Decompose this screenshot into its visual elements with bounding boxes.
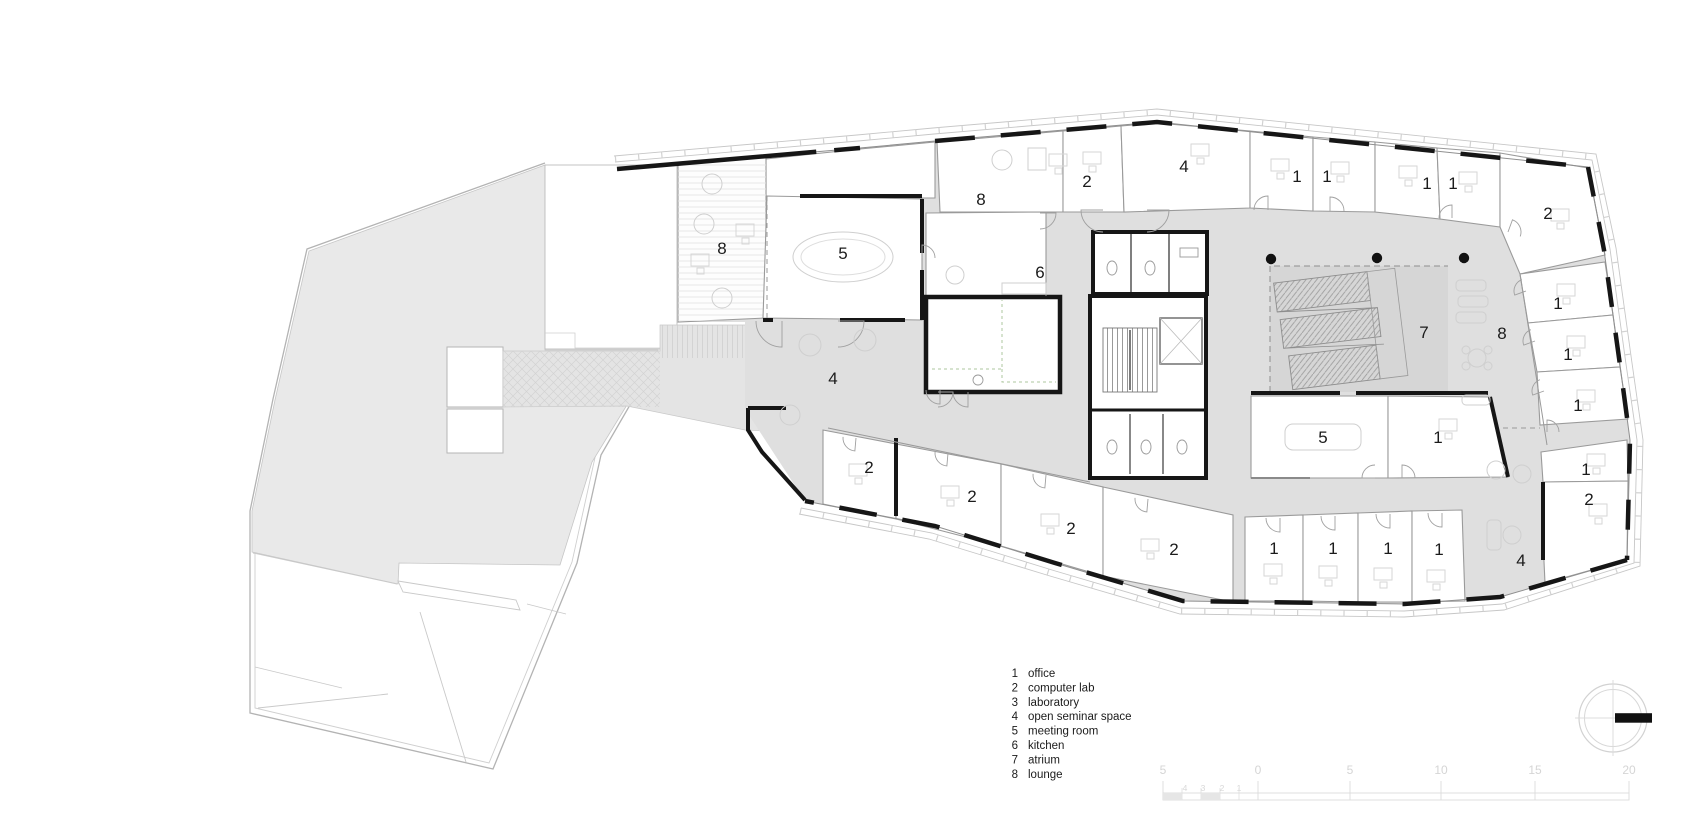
room-label-open-seminar-southeast: 4 <box>1516 551 1525 570</box>
room-label-office-e4: 1 <box>1581 460 1590 479</box>
scale-label: 20 <box>1622 763 1636 777</box>
room-label-open-seminar-north: 4 <box>1179 157 1188 176</box>
scale-label: 5 <box>1160 763 1167 777</box>
scale-label: 0 <box>1255 763 1262 777</box>
legend-num-7: 7 <box>1012 754 1018 766</box>
room-lounge-north <box>937 131 1063 212</box>
floor-plan-page: 858624111121781145112222211114 1office2c… <box>0 0 1700 827</box>
room-label-computer-lab-east: 2 <box>1584 490 1593 509</box>
scale-sublabel: 2 <box>1220 783 1225 793</box>
room-office-e2 <box>1528 315 1620 372</box>
floor-plan-canvas: 858624111121781145112222211114 1office2c… <box>0 0 1700 827</box>
legend-num-3: 3 <box>1012 697 1018 709</box>
roof-patch <box>545 165 677 349</box>
room-label-office-c1: 1 <box>1433 428 1442 447</box>
scale-sublabel: 3 <box>1201 783 1206 793</box>
skylight-box-upper <box>447 347 503 407</box>
room-label-lounge-west: 8 <box>717 239 726 258</box>
room-label-computer-lab-north: 2 <box>1082 172 1091 191</box>
room-label-open-seminar-west: 4 <box>828 369 837 388</box>
room-office-s1 <box>1245 515 1303 601</box>
room-label-meeting-room-northwest: 5 <box>838 244 847 263</box>
column-dot <box>1459 253 1469 263</box>
room-label-office-e3: 1 <box>1573 396 1582 415</box>
legend-label-4: open seminar space <box>1028 711 1132 723</box>
legend-num-1: 1 <box>1012 668 1018 680</box>
legend-num-8: 8 <box>1012 769 1018 781</box>
scale-sublabel: 1 <box>1237 783 1242 793</box>
room-label-office-n4: 1 <box>1448 174 1457 193</box>
room-label-meeting-room-south: 5 <box>1318 428 1327 447</box>
room-label-kitchen: 6 <box>1035 263 1044 282</box>
legend-label-7: atrium <box>1028 754 1060 766</box>
room-label-lounge-north: 8 <box>976 190 985 209</box>
scale-subbox <box>1201 793 1220 800</box>
lower-roof <box>253 553 566 762</box>
room-label-computer-lab-s2: 2 <box>967 487 976 506</box>
legend-label-2: computer lab <box>1028 682 1094 694</box>
room-label-office-n1: 1 <box>1292 167 1301 186</box>
room-label-office-e2: 1 <box>1563 345 1572 364</box>
legend-label-1: office <box>1028 668 1055 680</box>
skylight-box-lower <box>447 409 503 453</box>
column-dot <box>1372 253 1382 263</box>
room-label-office-s2: 1 <box>1328 539 1337 558</box>
room-label-office-s4: 1 <box>1434 540 1443 559</box>
room-label-office-s3: 1 <box>1383 539 1392 558</box>
room-label-lounge-east: 8 <box>1497 324 1506 343</box>
north-indicator <box>1575 680 1652 756</box>
legend-num-6: 6 <box>1012 740 1018 752</box>
legend-label-3: laboratory <box>1028 697 1079 709</box>
room-label-computer-lab-northeast: 2 <box>1543 204 1552 223</box>
room-label-computer-lab-s3: 2 <box>1066 519 1075 538</box>
scale-bar-frame <box>1163 793 1629 800</box>
legend-label-5: meeting room <box>1028 726 1098 738</box>
legend-label-8: lounge <box>1028 769 1063 781</box>
scale-subbox <box>1163 793 1182 800</box>
wc-block-north <box>1093 232 1207 294</box>
room-label-office-n3: 1 <box>1422 174 1431 193</box>
legend-num-5: 5 <box>1012 726 1018 738</box>
column-dot <box>1266 254 1276 264</box>
legend-num-2: 2 <box>1012 682 1018 694</box>
service-room <box>926 297 1060 392</box>
legend-num-4: 4 <box>1012 711 1019 723</box>
scale-bar: 5051015204321 <box>1160 763 1636 800</box>
room-label-office-e1: 1 <box>1553 294 1562 313</box>
room-label-computer-lab-s4: 2 <box>1169 540 1178 559</box>
room-label-computer-lab-s1: 2 <box>864 458 873 477</box>
scale-sublabel: 4 <box>1183 783 1188 793</box>
north-bar <box>1615 713 1652 723</box>
scale-label: 10 <box>1434 763 1448 777</box>
room-label-atrium: 7 <box>1419 323 1428 342</box>
scale-label: 5 <box>1347 763 1354 777</box>
legend-label-6: kitchen <box>1028 740 1064 752</box>
room-lab-north <box>1063 126 1124 212</box>
room-office-n4 <box>1437 148 1500 227</box>
room-label-office-s1: 1 <box>1269 539 1278 558</box>
room-lab-s1 <box>823 430 896 519</box>
legend: 1office2computer lab3laboratory4open sem… <box>1012 668 1132 781</box>
scale-label: 15 <box>1528 763 1542 777</box>
room-label-office-n2: 1 <box>1322 167 1331 186</box>
